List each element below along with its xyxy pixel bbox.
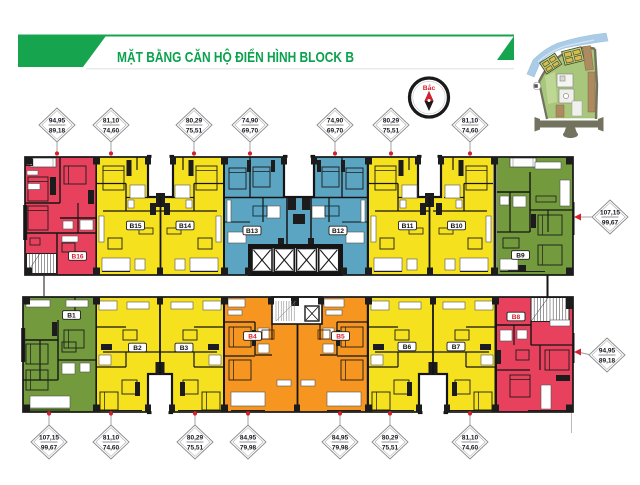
svg-text:107,15: 107,15: [39, 435, 59, 442]
svg-text:107,15: 107,15: [600, 210, 620, 217]
svg-text:B13: B13: [246, 228, 258, 235]
svg-text:89,18: 89,18: [599, 358, 616, 365]
svg-text:81,10: 81,10: [462, 435, 479, 442]
svg-text:75,51: 75,51: [187, 445, 204, 452]
svg-text:69,70: 69,70: [242, 128, 259, 135]
svg-text:B12: B12: [332, 228, 344, 235]
svg-text:89,18: 89,18: [49, 128, 66, 135]
svg-text:94,95: 94,95: [599, 348, 616, 355]
svg-text:B1: B1: [67, 313, 76, 320]
svg-text:80,29: 80,29: [383, 118, 400, 125]
svg-text:81,10: 81,10: [103, 435, 120, 442]
svg-text:B8: B8: [512, 314, 521, 321]
svg-text:B3: B3: [180, 345, 189, 352]
svg-text:74,60: 74,60: [462, 128, 479, 135]
svg-text:94,95: 94,95: [49, 118, 66, 125]
svg-text:B11: B11: [402, 223, 414, 230]
svg-text:75,51: 75,51: [382, 445, 399, 452]
svg-text:B15: B15: [129, 223, 141, 230]
svg-text:99,67: 99,67: [41, 445, 58, 452]
svg-text:81,10: 81,10: [103, 118, 120, 125]
svg-text:B2: B2: [133, 345, 142, 352]
svg-text:99,67: 99,67: [602, 220, 619, 227]
svg-text:81,10: 81,10: [462, 118, 479, 125]
svg-text:79,98: 79,98: [332, 445, 349, 452]
svg-text:74,60: 74,60: [103, 445, 120, 452]
svg-text:B4: B4: [248, 334, 257, 341]
svg-text:69,70: 69,70: [327, 128, 344, 135]
svg-text:74,60: 74,60: [103, 128, 120, 135]
svg-text:B7: B7: [452, 344, 461, 351]
svg-text:75,51: 75,51: [383, 128, 400, 135]
svg-text:74,60: 74,60: [462, 445, 479, 452]
svg-text:80,29: 80,29: [186, 118, 203, 125]
svg-text:80,29: 80,29: [382, 435, 399, 442]
svg-text:MẶT BẰNG CĂN HỘ ĐIỂN HÌNH BLOC: MẶT BẰNG CĂN HỘ ĐIỂN HÌNH BLOCK B: [117, 48, 354, 66]
svg-text:B5: B5: [336, 334, 345, 341]
svg-text:B16: B16: [71, 254, 83, 261]
svg-text:Bắc: Bắc: [423, 83, 436, 92]
svg-text:79,98: 79,98: [240, 445, 257, 452]
svg-text:74,90: 74,90: [327, 118, 344, 125]
svg-text:B10: B10: [450, 223, 462, 230]
svg-text:B6: B6: [403, 344, 412, 351]
svg-text:75,51: 75,51: [186, 128, 203, 135]
svg-text:84,95: 84,95: [332, 435, 349, 442]
svg-text:74,90: 74,90: [242, 118, 259, 125]
svg-text:80,29: 80,29: [187, 435, 204, 442]
svg-text:B14: B14: [179, 223, 191, 230]
svg-text:B9: B9: [516, 253, 525, 260]
svg-text:84,95: 84,95: [240, 435, 257, 442]
